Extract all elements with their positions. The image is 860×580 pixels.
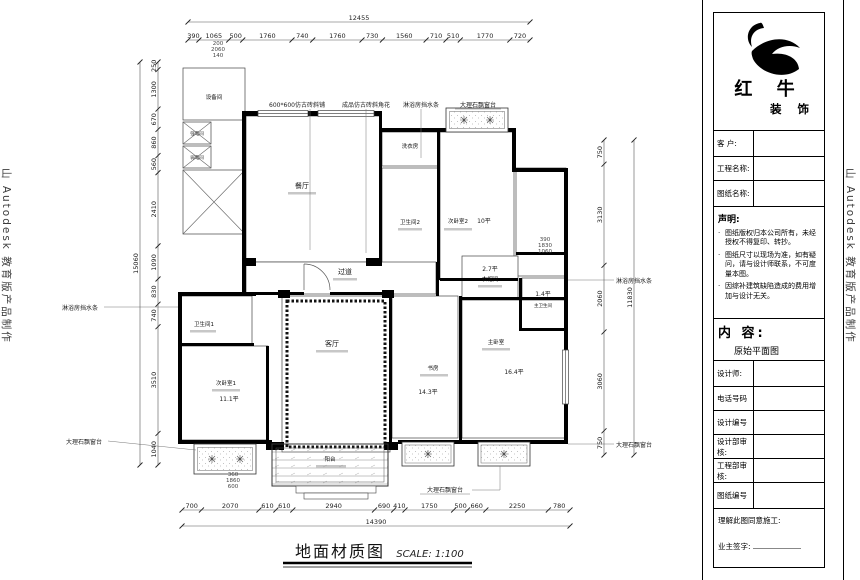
dimension-label: 510 (447, 32, 459, 40)
dimension-chain: 7002070610610294069041017505006602250780 (180, 502, 573, 513)
drawing-scale-text: SCALE: 1:100 (396, 549, 463, 560)
dimension-label: 15060 (132, 253, 140, 274)
area-label-cloakroom: 2.7平 (482, 266, 498, 273)
engineering-dept-label: 工程部审核: (714, 459, 754, 482)
room-label-bed1: 次卧室1 (216, 379, 236, 387)
dimension-label: 390 (187, 32, 199, 40)
flower-icon (208, 455, 216, 463)
room-label-bed2: 次卧室2 (448, 217, 468, 225)
dimension-label: 500 (454, 502, 466, 510)
company-logo-block: 红 牛 装 饰 (714, 13, 824, 131)
callout-tile: 600*600仿古砖斜铺 (269, 101, 325, 109)
content-block: 内 容: 原始平面图 (714, 319, 824, 361)
statement-text: 图纸尺寸以现场为准，如有疑问，请与设计师联系，不可度量本图。 (725, 251, 820, 279)
statement-item: · 图纸版权归本公司所有，未经授权不得复印、转抄。 (718, 229, 820, 248)
statement-title: 声明: (718, 212, 820, 225)
room-label-study: 书房 (427, 364, 439, 372)
room-label-balcony: 阳台 (324, 455, 336, 463)
dimension-label: 2940 (325, 502, 342, 510)
design-no-value (754, 411, 824, 434)
statement-item: · 图纸尺寸以现场为准，如有疑问，请与设计师联系，不可度量本图。 (718, 251, 820, 279)
room-label-cloakroom: 衣帽间 (482, 275, 499, 283)
dimension-label: 740 (296, 32, 308, 40)
callout-shower-strip-top: 淋浴房挡水条 (403, 101, 439, 109)
project-name-label: 工程名称: (714, 157, 754, 180)
dimension-label: 860 (150, 136, 158, 148)
flower-icon (500, 450, 508, 458)
dimension-label: 560 (150, 158, 158, 170)
callout-marble-sill-top: 大理石飘窗台 (460, 101, 496, 109)
designer-label: 设计师: (714, 361, 754, 386)
design-dept-value (754, 435, 824, 458)
dimension-label: 660 (470, 502, 482, 510)
dimension-chain: 25013006708605602410109083074035101040 (150, 60, 161, 468)
drawing-name-value (754, 181, 824, 206)
flower-icon (236, 455, 244, 463)
callout-shower-strip-left: 淋浴房挡水条 (62, 304, 98, 312)
room-label-living: 客厅 (325, 339, 339, 348)
design-no-label: 设计编号 (714, 411, 754, 434)
brand-subname: 装 饰 (770, 101, 815, 117)
dimension-label: 1065 (206, 32, 223, 40)
dimension-label: 710 (430, 32, 442, 40)
room-label-hallway: 过道 (338, 267, 352, 276)
dimension-label: 700 (186, 502, 198, 510)
dimension-label: 3060 (596, 373, 604, 390)
cad-sheet: 山 Autodesk 教育版产品制作 山 Autodesk 教育版产品制作 (0, 0, 860, 580)
dimension-label: 3510 (150, 372, 158, 389)
room-label-dining: 餐厅 (295, 181, 309, 190)
callout-corner-flower: 成品仿古砖斜角花 (342, 101, 390, 109)
signature-line (753, 540, 801, 549)
dimension-label: 1760 (259, 32, 276, 40)
dimension-label: 730 (366, 32, 378, 40)
room-label-weak-elec: 弱电间 (190, 154, 204, 161)
room-bed1 (180, 346, 268, 440)
dimension-label: 750 (596, 437, 604, 449)
flower-icon (486, 116, 494, 124)
customer-value (754, 131, 824, 156)
design-dept-label: 设计部审核: (714, 435, 754, 458)
engineering-dept-value (754, 459, 824, 482)
balcony-step (296, 486, 376, 493)
customer-row: 客 户: (714, 131, 824, 157)
project-name-value (754, 157, 824, 180)
flower-icon (460, 116, 468, 124)
drawing-no-value (754, 483, 824, 508)
design-dept-row: 设计部审核: (714, 435, 824, 459)
dimension-label: 1750 (421, 502, 438, 510)
callout-marble-sill-bottom: 大理石飘窗台 (427, 486, 463, 494)
drawing-name-row: 图纸名称: (714, 181, 824, 207)
area-label-bed1: 11.1平 (219, 396, 238, 403)
room-equipment (183, 68, 245, 120)
room-right-strip (516, 168, 566, 276)
dimension-chain: 11830 (626, 138, 637, 458)
designer-value (754, 361, 824, 386)
dimension-chain: 3901065500176074017607301560710510177072… (186, 32, 533, 43)
dimension-label: 11830 (626, 287, 634, 308)
phone-row: 电话号码 (714, 387, 824, 411)
room-label-bath2: 卫生间2 (400, 218, 420, 226)
room-study (392, 296, 458, 438)
phone-value (754, 387, 824, 410)
room-label-master-bath: 主卫生间 (534, 302, 552, 309)
title-block-column: 红 牛 装 饰 客 户: 工程名称: 图纸名称: 声明: · 图纸版权归本公司所… (702, 0, 844, 580)
small-dim: 140 (213, 53, 224, 59)
room-label-laundry: 洗衣房 (402, 142, 419, 150)
area-label-master: 16.4平 (504, 369, 523, 376)
dimension-label: 3130 (596, 207, 604, 224)
project-name-row: 工程名称: (714, 157, 824, 181)
room-living (282, 296, 390, 452)
area-label-master-bath: 1.4平 (535, 291, 551, 298)
engineering-dept-row: 工程部审核: (714, 459, 824, 483)
flower-icon (424, 450, 432, 458)
content-value: 原始平面图 (734, 344, 820, 357)
dimension-label: 1770 (477, 32, 494, 40)
building-core: 设备间 强电间 弱电间 (183, 68, 245, 234)
callout-marble-sill-left: 大理石飘窗台 (66, 438, 102, 446)
area-label-bed2: 10平 (477, 218, 491, 225)
bullet: · (718, 282, 725, 301)
content-label: 内 容: (718, 322, 820, 341)
small-dim: 600 (228, 484, 239, 490)
room-label-master: 主卧室 (488, 338, 505, 346)
dimension-label: 1560 (396, 32, 413, 40)
owner-sign-line: 业主签字: (718, 540, 820, 552)
owner-sign-label: 业主签字: (718, 542, 751, 551)
dimension-label: 610 (278, 502, 290, 510)
dimension-label: 250 (150, 60, 158, 72)
drawing-name-label: 图纸名称: (714, 181, 754, 206)
dimension-chain: 14390 (180, 518, 573, 529)
floor-plan: 设备间 强电间 弱电间 (0, 0, 700, 580)
dimension-label: 740 (150, 309, 158, 321)
dimension-label: 670 (150, 113, 158, 125)
dimension-label: 1040 (150, 441, 158, 458)
brand-name: 红 牛 (714, 75, 824, 101)
dimension-label: 2060 (596, 290, 604, 307)
agree-label: 理解此图同意施工: (718, 515, 820, 526)
dimension-label: 2250 (509, 502, 526, 510)
dimension-label: 14390 (366, 518, 387, 526)
dimension-label: 610 (261, 502, 273, 510)
signature-block: 理解此图同意施工: 业主签字: (714, 509, 824, 567)
dimension-label: 830 (150, 285, 158, 297)
room-dining (246, 116, 380, 262)
title-block: 红 牛 装 饰 客 户: 工程名称: 图纸名称: 声明: · 图纸版权归本公司所… (713, 12, 825, 568)
room-label-strong-elec: 强电间 (190, 130, 204, 137)
dimension-label: 2070 (222, 502, 239, 510)
dimension-label: 780 (553, 502, 565, 510)
drawing-no-row: 图纸编号 (714, 483, 824, 509)
drawing-title-text: 地面材质图 (295, 542, 385, 561)
balcony-step (304, 493, 368, 499)
balcony (272, 444, 388, 499)
dimension-label: 690 (378, 502, 390, 510)
bullet: · (718, 251, 725, 279)
dimension-label: 500 (230, 32, 242, 40)
customer-label: 客 户: (714, 131, 754, 156)
dimension-chain: 12455 (186, 14, 533, 25)
dimension-label: 12455 (349, 14, 370, 22)
dimension-chain: 15060 (132, 60, 143, 468)
bull-logo-icon (714, 15, 824, 77)
statement-text: 图纸版权归本公司所有，未经授权不得复印、转抄。 (725, 229, 820, 248)
area-label-study: 14.3平 (418, 389, 437, 396)
statement-block: 声明: · 图纸版权归本公司所有，未经授权不得复印、转抄。 · 图纸尺寸以现场为… (714, 207, 824, 319)
phone-label: 电话号码 (714, 387, 754, 410)
dimension-label: 2410 (150, 201, 158, 218)
dimension-label: 410 (393, 502, 405, 510)
room-label-bath1: 卫生间1 (194, 320, 214, 328)
statement-text: 因综补建筑缺陷造成的费用增加与设计无关。 (725, 282, 820, 301)
dimension-label: 750 (596, 146, 604, 158)
design-no-row: 设计编号 (714, 411, 824, 435)
drawing-title: 地面材质图 SCALE: 1:100 (283, 542, 472, 567)
dimension-chain: 750313020603060750 (596, 138, 607, 458)
dimension-label: 1760 (329, 32, 346, 40)
drawing-no-label: 图纸编号 (714, 483, 754, 508)
statement-item: · 因综补建筑缺陷造成的费用增加与设计无关。 (718, 282, 820, 301)
dimension-label: 720 (514, 32, 526, 40)
room-bath1 (180, 296, 252, 344)
small-dim: 1060 (538, 249, 552, 255)
room-label-equipment: 设备间 (206, 93, 223, 101)
designer-row: 设计师: (714, 361, 824, 387)
dimension-label: 1300 (150, 81, 158, 98)
autodesk-watermark-right: 山 Autodesk 教育版产品制作 (843, 168, 858, 344)
bullet: · (718, 229, 725, 248)
dimension-label: 1090 (150, 254, 158, 271)
